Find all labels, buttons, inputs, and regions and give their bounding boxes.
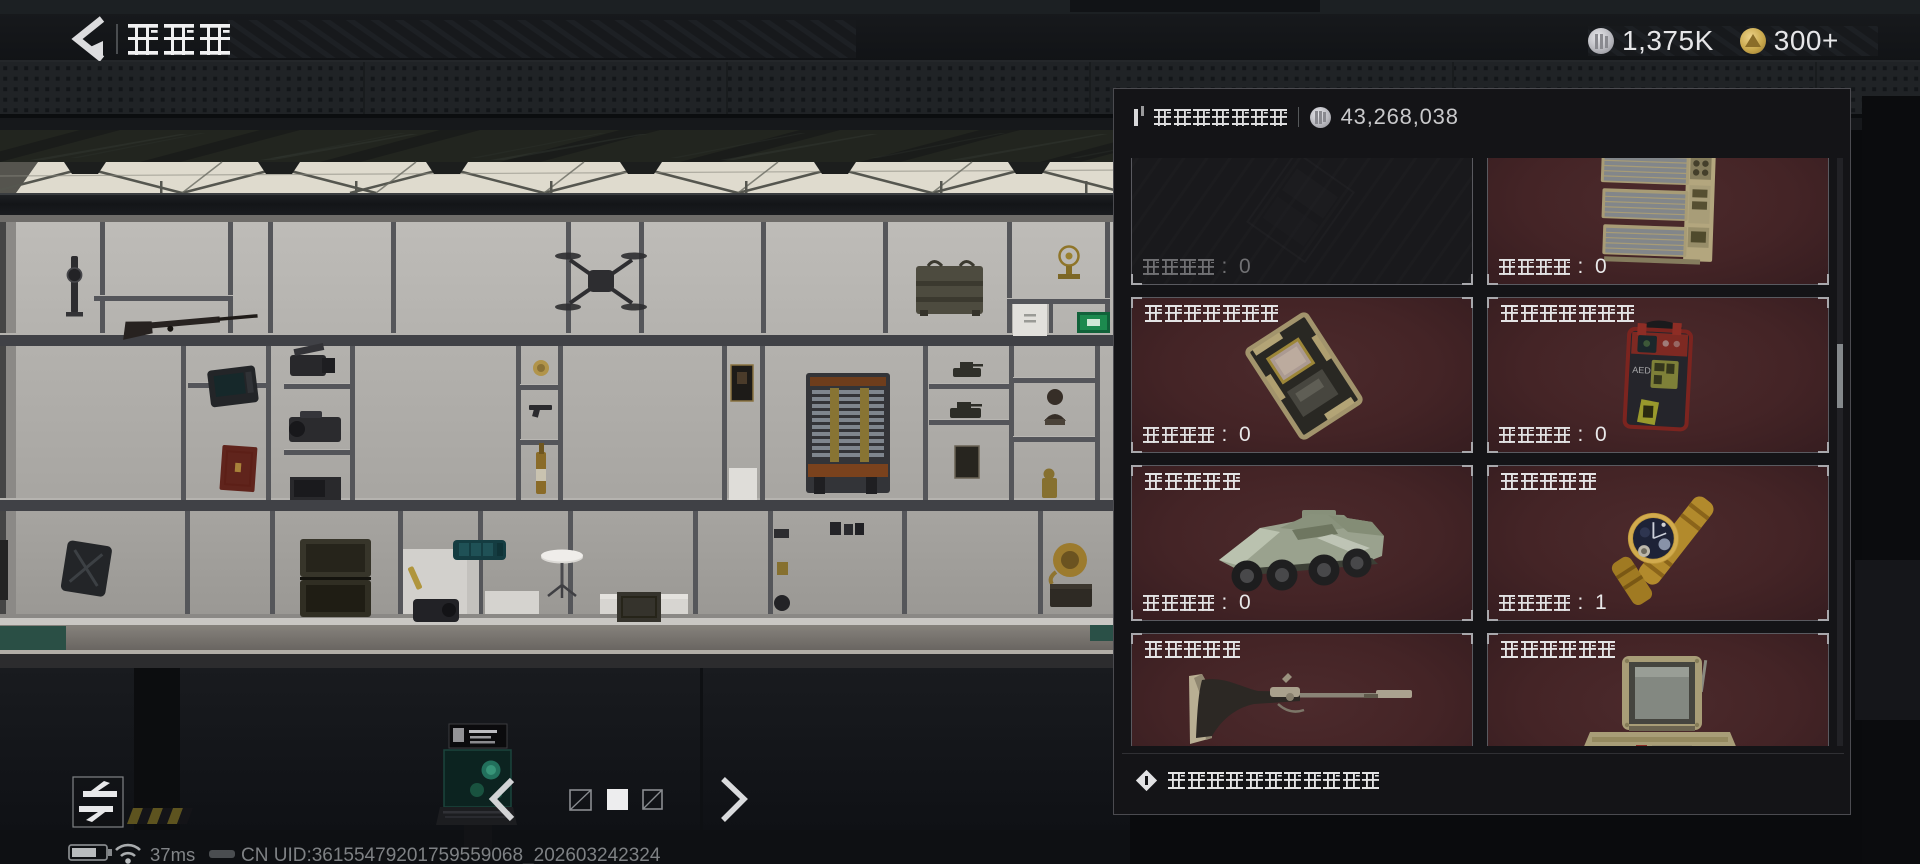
svg-text:AED: AED — [1632, 365, 1652, 376]
svg-text:37ms: 37ms — [150, 844, 195, 864]
svg-text:CN UID:36155479201759559068_20: CN UID:36155479201759559068_202603242324 — [241, 845, 661, 864]
